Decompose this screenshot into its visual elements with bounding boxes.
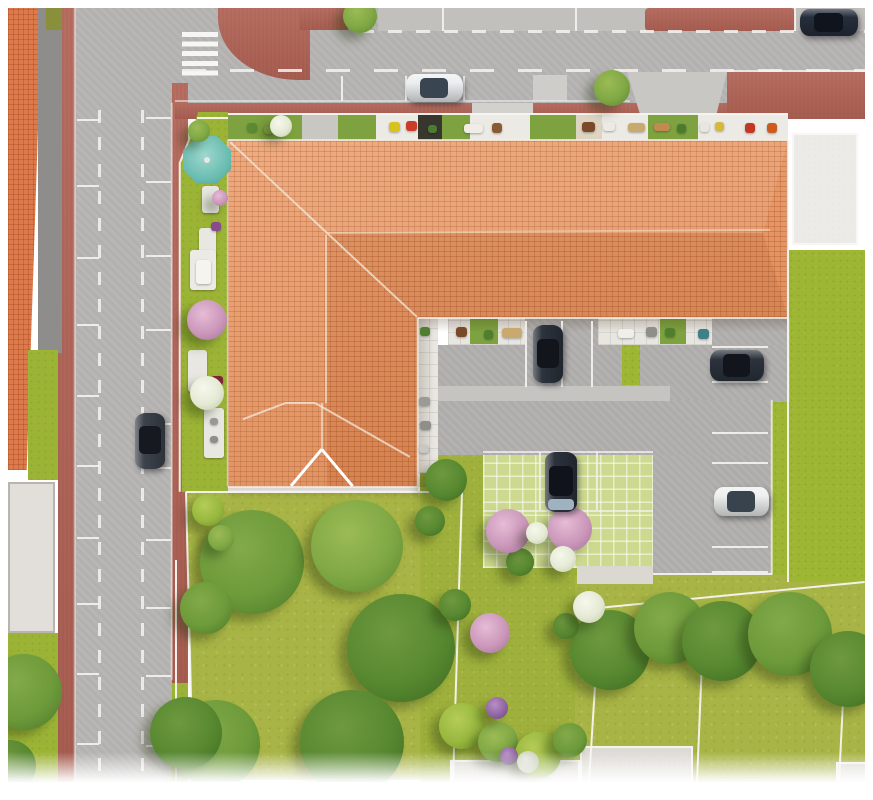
terrace-furniture-west-wing — [419, 445, 429, 453]
garden-furniture — [196, 260, 211, 284]
road-marking — [146, 329, 171, 331]
road-marking — [712, 546, 768, 548]
terrace-furniture-north — [603, 122, 615, 131]
fence — [197, 117, 228, 119]
terrace-furniture-court — [456, 327, 467, 337]
sidewalk-island-north — [645, 8, 795, 31]
fence — [179, 162, 181, 492]
blossom-purple-1 — [486, 697, 508, 719]
court-bush-3 — [439, 589, 471, 621]
road-marking — [77, 119, 99, 121]
car-dark-grass-pavers-glass — [549, 466, 572, 496]
blossom-white-5 — [270, 115, 292, 137]
car-white-north-street-glass — [420, 78, 449, 98]
terrace-segment-grass — [530, 114, 576, 140]
terrace-furniture-court — [618, 329, 634, 338]
terrace-furniture-north — [389, 122, 400, 132]
fence — [771, 400, 773, 575]
olive-verge — [46, 8, 62, 30]
garden-furniture — [211, 222, 221, 231]
road-marking — [77, 395, 99, 397]
road-marking — [77, 257, 99, 259]
road-marking — [525, 321, 527, 387]
lawn-tree-2 — [311, 500, 403, 592]
garden-furniture — [210, 436, 218, 443]
roof-eave — [228, 139, 788, 141]
road-marking — [712, 381, 768, 383]
blossom-pink-5 — [212, 190, 228, 206]
roof-eave — [227, 140, 229, 487]
road-marking — [539, 452, 541, 510]
car-white-north-street — [406, 74, 463, 102]
car-dark-grass-pavers — [545, 452, 577, 512]
site-plan-canvas — [0, 0, 873, 800]
blossom-white-4 — [573, 591, 605, 623]
blossom-pink-3 — [548, 507, 592, 551]
road-marking — [146, 539, 171, 541]
garden-bush-1 — [188, 120, 210, 142]
road-marking — [712, 571, 768, 573]
lawn-east — [788, 250, 866, 582]
roadside-tree-1 — [180, 582, 232, 634]
margin-right — [865, 0, 873, 800]
road-marking — [596, 452, 598, 510]
garden-furniture — [210, 418, 218, 425]
road-marking — [442, 8, 444, 31]
court-bush-2 — [415, 506, 445, 536]
lane-dash-north-parking — [360, 30, 865, 33]
white-gravel-pad — [792, 133, 858, 245]
road-marking — [146, 675, 171, 677]
road-marking — [653, 573, 772, 575]
alley-west — [38, 8, 62, 353]
fence — [186, 491, 462, 493]
parasol-pole — [204, 157, 210, 163]
concrete-pad-west — [8, 482, 55, 633]
road-marking — [74, 8, 76, 782]
road-marking — [77, 465, 99, 467]
roof-ridge — [285, 402, 315, 404]
court-green-patch — [622, 343, 640, 385]
fence — [228, 113, 788, 115]
road-marking — [77, 743, 99, 745]
blossom-pink-2 — [486, 509, 530, 553]
car-dark-courtyard — [533, 325, 563, 383]
terrace-furniture-court — [502, 328, 522, 338]
margin-top — [0, 0, 873, 8]
car-dark-courtyard-glass — [537, 339, 559, 368]
roof-eave — [787, 140, 789, 318]
lawn-tree-3 — [347, 594, 455, 702]
terrace-furniture-west-wing — [419, 397, 430, 406]
lawn-shrub-2 — [208, 525, 234, 551]
road-marking — [77, 537, 99, 539]
terrace-furniture-north — [492, 123, 502, 133]
car-dark-east-lot — [710, 350, 764, 381]
terrace-furniture-court — [698, 329, 709, 339]
road-marking — [77, 673, 99, 675]
terrace-furniture-north — [715, 122, 724, 131]
car-dark-east-lot-glass — [723, 354, 750, 376]
roof-ridge — [321, 403, 323, 449]
terrace-furniture-north — [700, 123, 709, 132]
car-gray-west-street-glass — [139, 426, 161, 454]
road-marking — [77, 185, 99, 187]
road-marking — [712, 432, 768, 434]
road-marking — [171, 103, 173, 680]
terrace-furniture-court — [665, 328, 675, 337]
road-marking — [712, 462, 768, 464]
lawn-shrub-1 — [192, 494, 224, 526]
road-marking — [341, 76, 343, 101]
lane-dash-west-road-l — [98, 110, 101, 782]
court-walkway — [438, 386, 670, 401]
blossom-white-3 — [550, 546, 576, 572]
road-marking — [175, 100, 630, 102]
grid-walkway — [577, 566, 653, 584]
roof-ridge — [325, 235, 327, 403]
terrace-segment-concrete — [302, 114, 338, 140]
terrace-furniture-west-wing — [420, 421, 431, 430]
road-marking — [146, 607, 171, 609]
bottom-fade — [0, 752, 873, 784]
blossom-white-1 — [190, 376, 224, 410]
margin-left — [0, 0, 8, 800]
garden-furniture — [204, 408, 224, 458]
terrace-furniture-north — [582, 122, 595, 132]
roof-shadow-wing — [228, 487, 418, 500]
roof-eave — [228, 486, 418, 488]
road-marking — [146, 255, 171, 257]
road-marking — [712, 346, 768, 348]
road-marking — [77, 603, 99, 605]
road-marking — [591, 321, 593, 387]
terrace-furniture-court — [646, 327, 657, 337]
street-tree-2 — [594, 70, 630, 106]
terrace-furniture-north — [677, 124, 686, 133]
terrace-furniture-north — [406, 121, 417, 131]
car-dark-grass-pavers-hood — [548, 499, 574, 510]
roof-shadow-south — [418, 318, 788, 332]
car-white-east-lot-glass — [727, 491, 755, 512]
road-marking — [727, 70, 865, 72]
blossom-pink-1 — [187, 300, 227, 340]
car-gray-west-street — [135, 413, 165, 469]
margin-bottom — [0, 782, 873, 800]
blossom-white-2 — [526, 522, 548, 544]
court-bush-5 — [553, 613, 579, 639]
alley-grass — [28, 350, 58, 480]
road-marking — [463, 76, 465, 101]
car-dark-north-street — [800, 9, 858, 36]
terrace-furniture-court — [484, 330, 493, 339]
sidewalk-east-big — [727, 72, 866, 119]
terrace-segment-grass — [338, 114, 376, 140]
terrace-furniture-north — [428, 125, 437, 133]
terrace-furniture-north — [745, 123, 755, 133]
terrace-furniture-north — [628, 123, 645, 132]
terrace-furniture-north — [464, 124, 483, 133]
road-marking — [794, 8, 796, 31]
roof-eave — [418, 317, 788, 319]
sidewalk-north-strip — [300, 8, 348, 30]
terrace-furniture-north — [247, 123, 257, 132]
terrace-furniture-north — [767, 123, 777, 133]
road-marking — [146, 181, 171, 183]
court-bush-1 — [425, 459, 467, 501]
car-dark-north-street-glass — [814, 13, 843, 32]
path-patch-1 — [533, 75, 567, 101]
terrace-furniture-west-wing — [420, 327, 430, 336]
court-asphalt-mid — [438, 400, 772, 455]
road-marking — [575, 8, 577, 31]
terrace-furniture-north — [654, 123, 670, 131]
car-white-east-lot — [714, 487, 769, 516]
road-marking — [77, 324, 99, 326]
blossom-pink-4 — [470, 613, 510, 653]
road-marking — [146, 117, 171, 119]
